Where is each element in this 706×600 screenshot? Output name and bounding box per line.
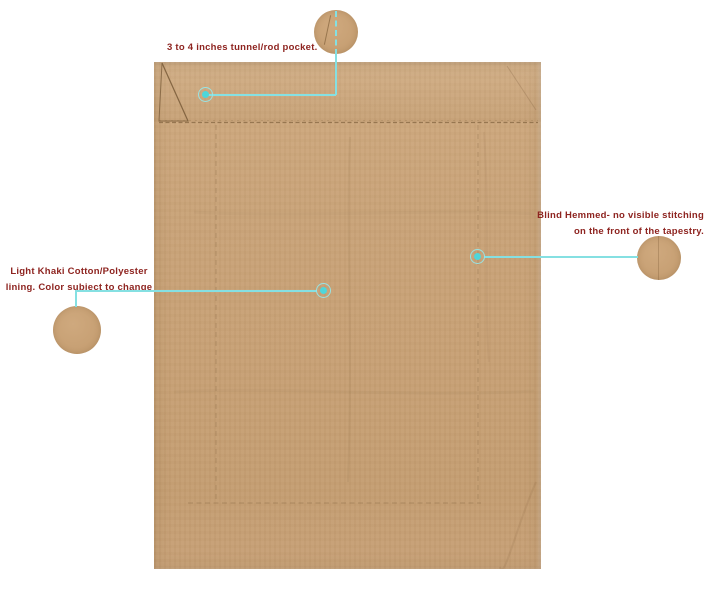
blind-hem-note-line2: on the front of the tapestry. — [537, 224, 704, 240]
blind-hem-leader-horizontal — [484, 256, 638, 258]
lining-zoom-circle — [53, 306, 101, 354]
tapestry-back-lining-photo — [154, 62, 541, 569]
rod-pocket-note: 3 to 4 inches tunnel/rod pocket. — [167, 40, 318, 56]
blind-hem-note-line1: Blind Hemmed- no visible stitching — [537, 208, 704, 224]
tapestry-annotation-figure: 3 to 4 inches tunnel/rod pocket. Blind H… — [0, 0, 706, 600]
dot-core — [202, 91, 209, 98]
rod-pocket-leader-vertical — [335, 55, 337, 95]
lining-hotspot-dot[interactable] — [316, 283, 331, 298]
lining-leader-horizontal — [75, 290, 317, 292]
dot-core — [474, 253, 481, 260]
rod-pocket-leader-horizontal — [205, 94, 336, 96]
blind-hem-detail-line — [658, 236, 659, 280]
rod-pocket-hotspot-dot[interactable] — [198, 87, 213, 102]
stitch-seams — [154, 62, 541, 569]
lining-note-line1: Light Khaki Cotton/Polyester — [3, 264, 155, 280]
lining-note-line2: lining. Color subject to change — [3, 280, 155, 296]
rod-pocket-stitch-detail — [324, 15, 331, 45]
lining-leader-vertical — [75, 290, 77, 307]
blind-hem-hotspot-dot[interactable] — [470, 249, 485, 264]
blind-hem-note: Blind Hemmed- no visible stitching on th… — [537, 208, 704, 240]
blind-hem-zoom-circle — [637, 236, 681, 280]
dot-core — [320, 287, 327, 294]
rod-pocket-dashed-leader — [335, 11, 337, 55]
